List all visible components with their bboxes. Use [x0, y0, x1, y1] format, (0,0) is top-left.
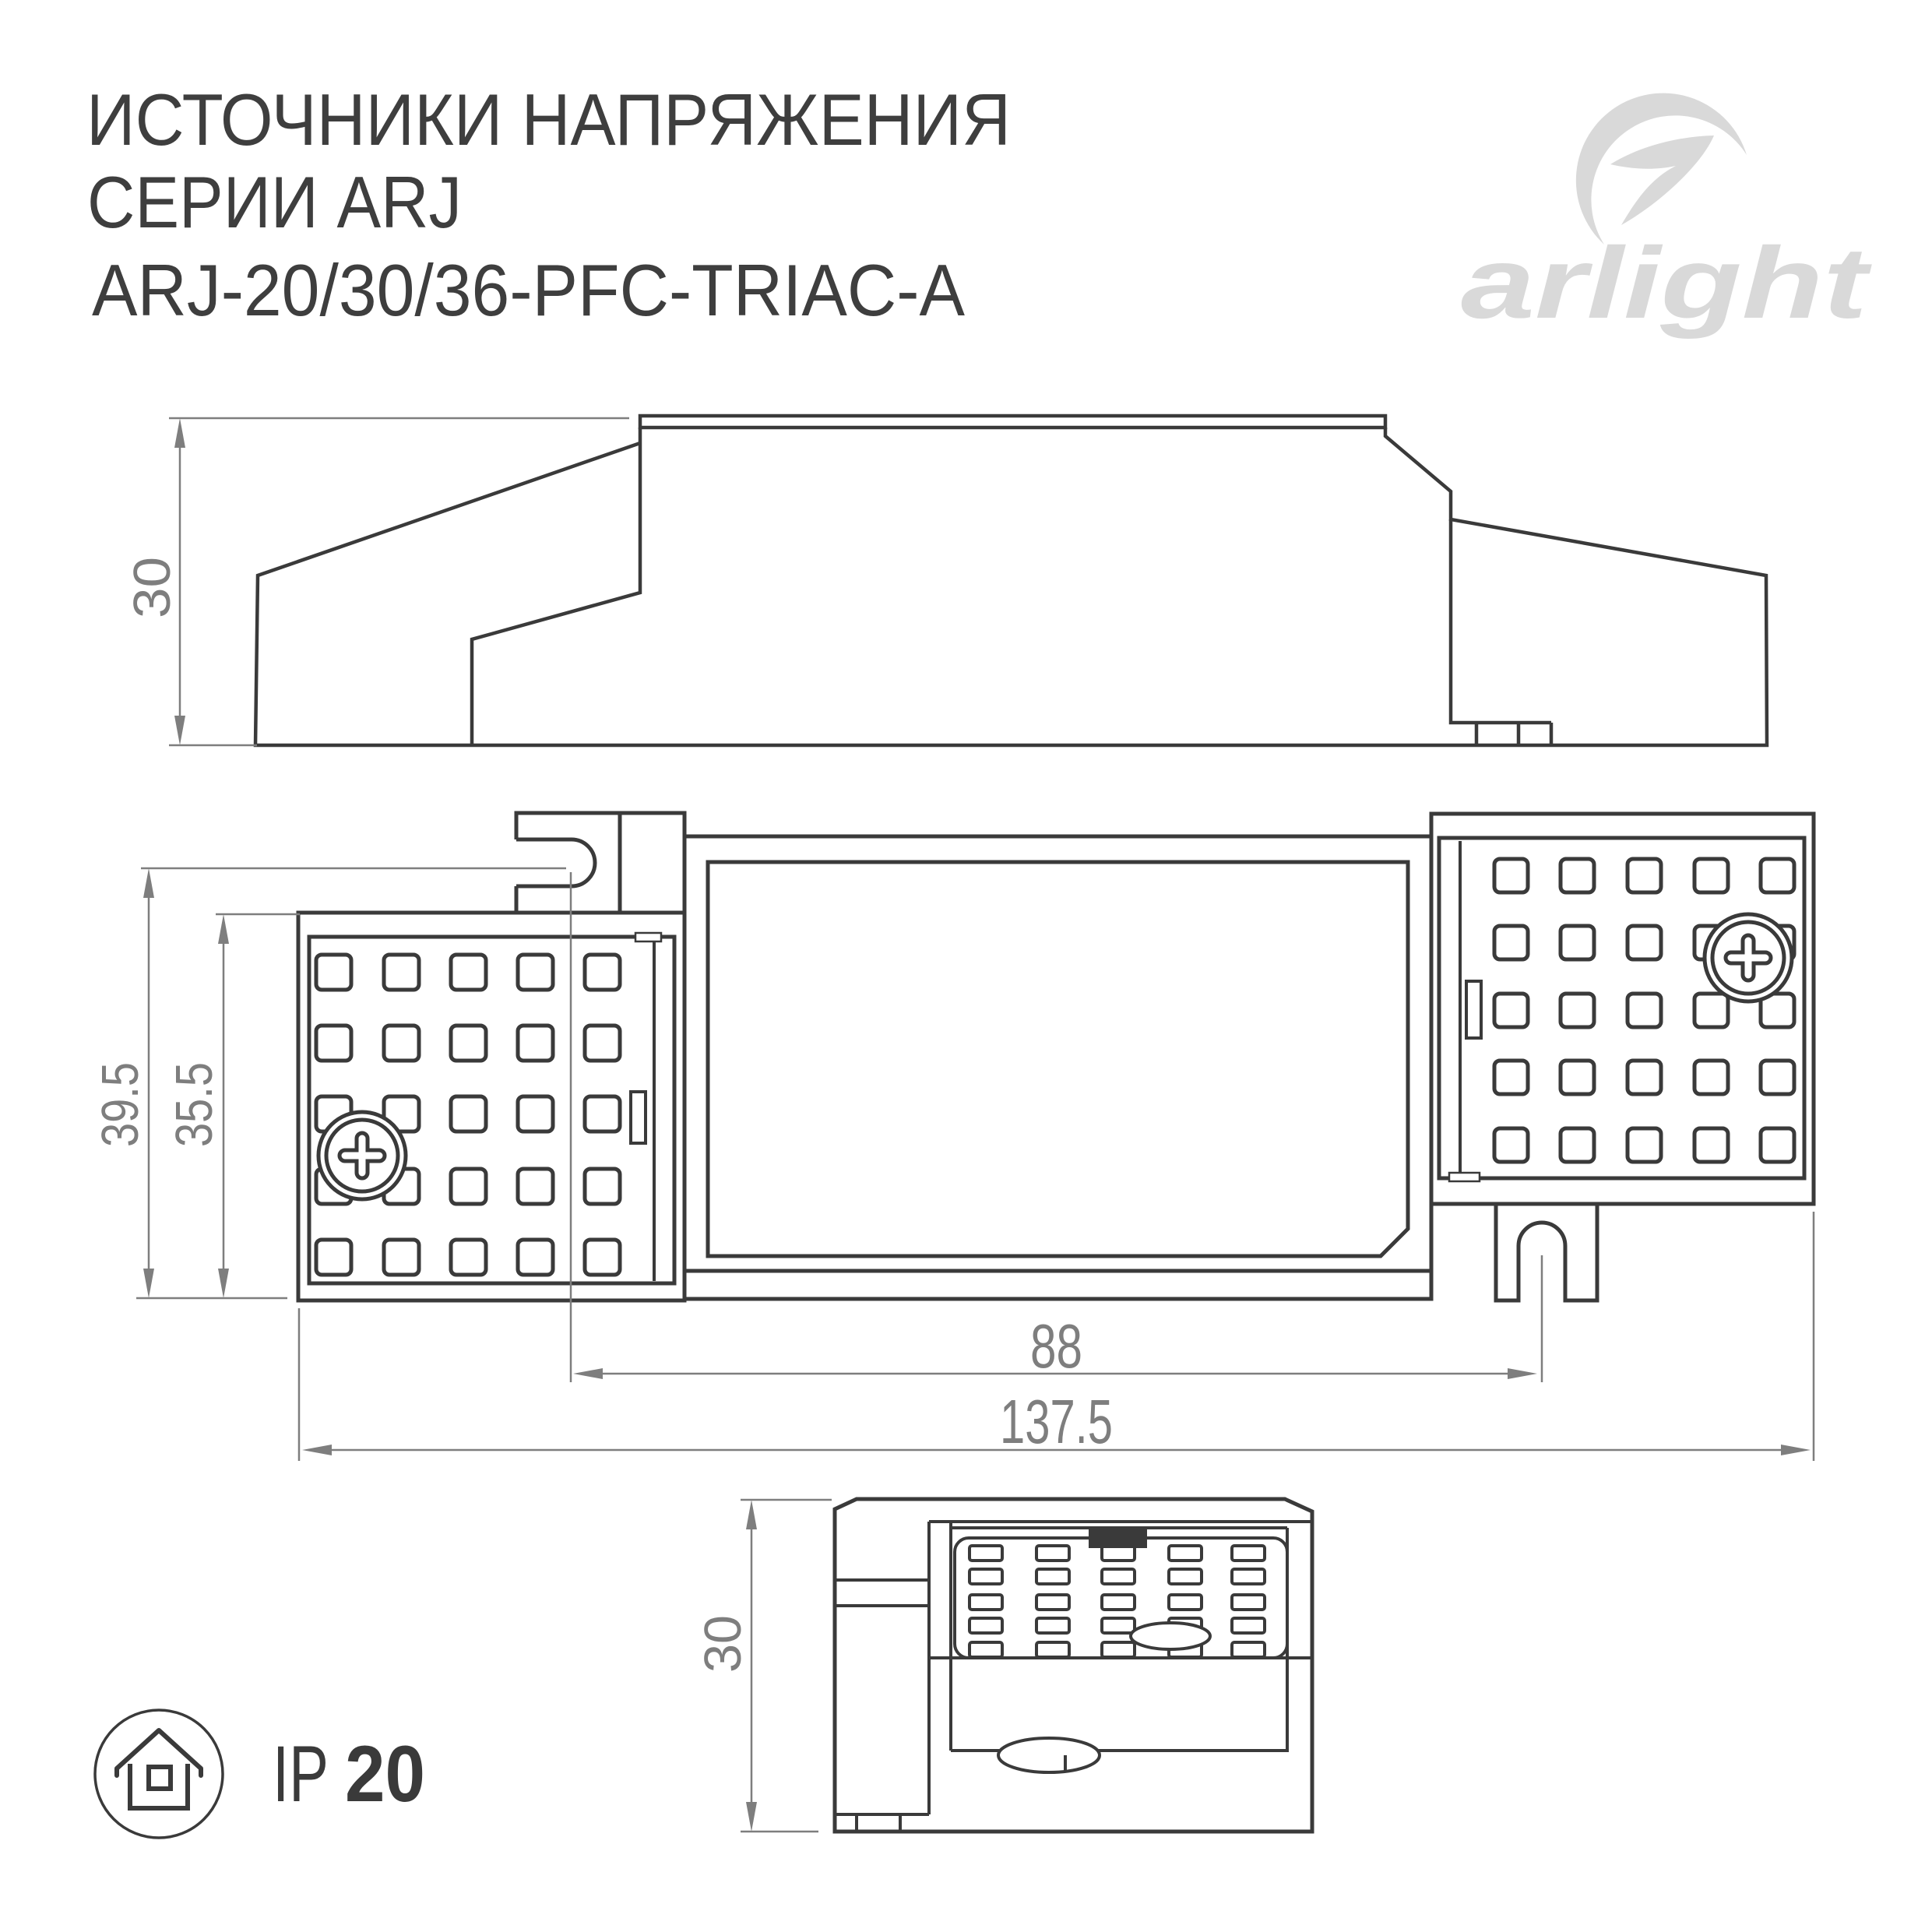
svg-text:ARJ-20/30/36-PFC-TRIAC-A: ARJ-20/30/36-PFC-TRIAC-A — [92, 249, 965, 331]
svg-text:СЕРИИ ARJ: СЕРИИ ARJ — [87, 161, 462, 243]
svg-text:IP: IP — [273, 1730, 329, 1818]
svg-text:30: 30 — [123, 557, 181, 618]
svg-text:35.5: 35.5 — [165, 1062, 223, 1147]
svg-text:88: 88 — [1030, 1311, 1082, 1381]
svg-text:arlight: arlight — [1461, 226, 1872, 340]
svg-text:20: 20 — [345, 1730, 425, 1818]
svg-text:39.5: 39.5 — [91, 1062, 150, 1147]
svg-text:137.5: 137.5 — [1000, 1387, 1113, 1456]
svg-text:ИСТОЧНИКИ НАПРЯЖЕНИЯ: ИСТОЧНИКИ НАПРЯЖЕНИЯ — [86, 79, 1011, 160]
svg-text:30: 30 — [694, 1615, 752, 1673]
